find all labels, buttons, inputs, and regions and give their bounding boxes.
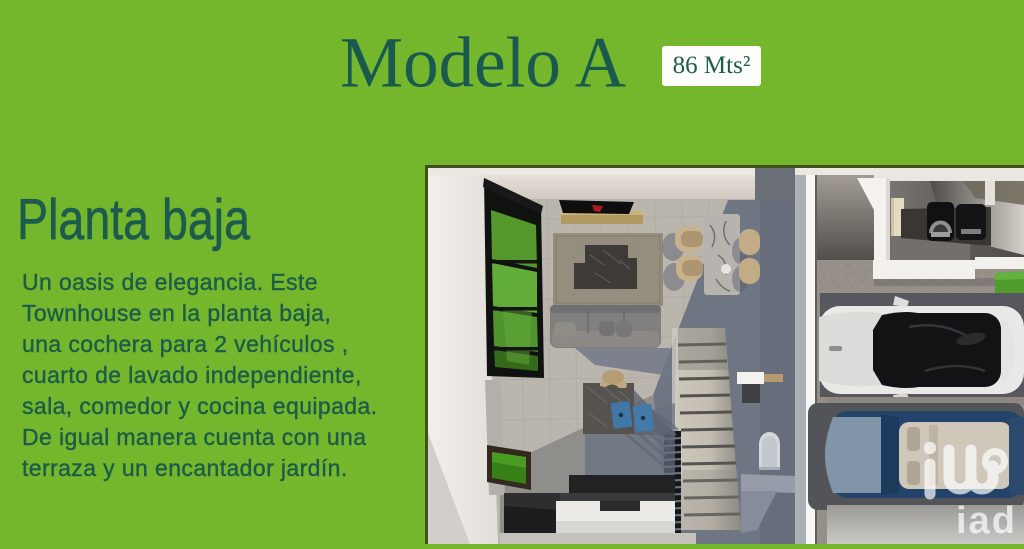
svg-text:iad: iad: [956, 500, 1017, 542]
